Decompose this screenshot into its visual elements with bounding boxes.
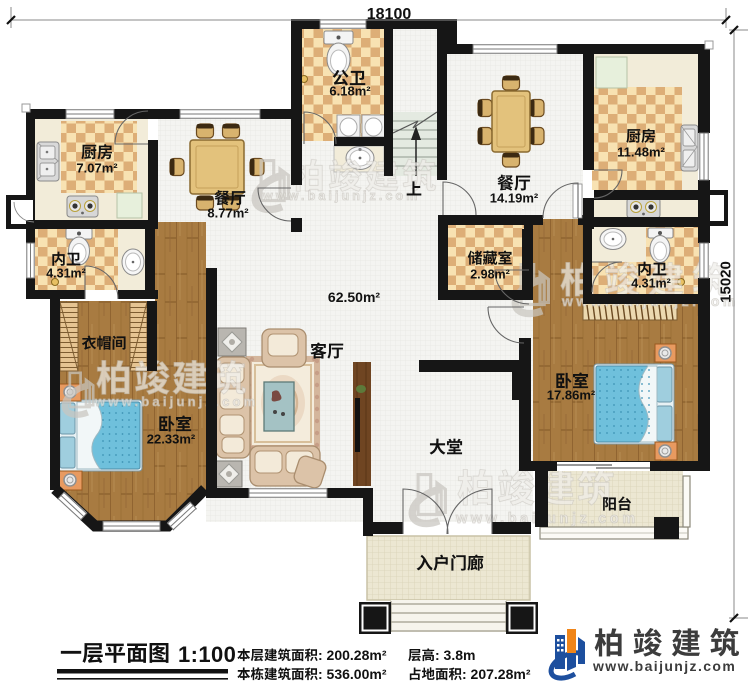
svg-text:8.77m²: 8.77m²: [207, 206, 249, 221]
svg-text:14.19m²: 14.19m²: [490, 191, 539, 206]
svg-text:2.98m²: 2.98m²: [470, 268, 510, 282]
svg-text:18100: 18100: [367, 6, 412, 23]
svg-text:17.86m²: 17.86m²: [547, 388, 596, 403]
svg-text:: 207.28m²: : 207.28m²: [462, 666, 531, 682]
svg-text:4.31m²: 4.31m²: [46, 267, 86, 281]
svg-text:1:100: 1:100: [178, 642, 236, 667]
svg-text:: 200.28m²: : 200.28m²: [318, 647, 387, 663]
svg-text:www.baijunjz.com: www.baijunjz.com: [592, 658, 736, 674]
svg-text:6.18m²: 6.18m²: [329, 84, 371, 99]
svg-text:22.33m²: 22.33m²: [147, 432, 196, 447]
svg-text:11.48m²: 11.48m²: [617, 145, 665, 160]
svg-text:: 536.00m²: : 536.00m²: [318, 666, 387, 682]
svg-text:: 3.8m: : 3.8m: [435, 647, 475, 663]
svg-text:15020: 15020: [717, 261, 734, 303]
svg-text:62.50m²: 62.50m²: [328, 289, 380, 305]
svg-text:4.31m²: 4.31m²: [631, 277, 671, 291]
svg-text:www.baijunjz.com: www.baijunjz.com: [262, 189, 420, 203]
svg-text:7.07m²: 7.07m²: [76, 161, 118, 176]
svg-text:www.baijunjz.com: www.baijunjz.com: [94, 394, 258, 409]
